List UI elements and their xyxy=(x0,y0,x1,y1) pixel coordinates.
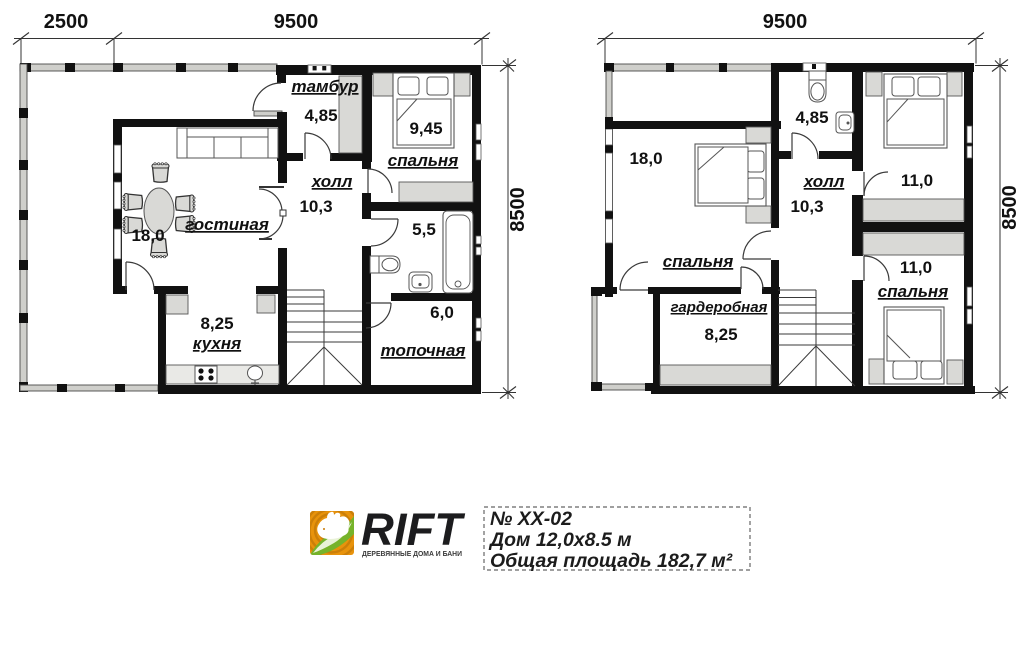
svg-text:ДЕРЕВЯННЫЕ ДОМА И БАНИ: ДЕРЕВЯННЫЕ ДОМА И БАНИ xyxy=(362,549,462,558)
svg-text:2500: 2500 xyxy=(44,11,89,33)
svg-text:Дом 12,0х8.5 м: Дом 12,0х8.5 м xyxy=(488,529,632,551)
svg-text:11,0: 11,0 xyxy=(901,171,933,190)
svg-text:4,85: 4,85 xyxy=(304,106,337,125)
svg-text:8500: 8500 xyxy=(507,187,529,232)
svg-text:9,45: 9,45 xyxy=(409,119,442,138)
svg-text:холл: холл xyxy=(311,172,353,191)
svg-text:8,25: 8,25 xyxy=(704,325,737,344)
svg-text:9500: 9500 xyxy=(274,11,319,33)
svg-text:4,85: 4,85 xyxy=(795,108,828,127)
svg-text:№ ХХ-02: № ХХ-02 xyxy=(490,508,572,530)
svg-text:кухня: кухня xyxy=(193,334,241,353)
svg-text:5,5: 5,5 xyxy=(412,220,436,239)
svg-text:10,3: 10,3 xyxy=(299,197,332,216)
svg-text:топочная: топочная xyxy=(381,341,466,360)
svg-text:10,3: 10,3 xyxy=(790,197,823,216)
svg-text:гардеробная: гардеробная xyxy=(671,299,768,316)
svg-text:11,0: 11,0 xyxy=(900,258,932,277)
svg-text:гостиная: гостиная xyxy=(185,215,269,234)
svg-text:спальня: спальня xyxy=(388,151,458,170)
svg-text:спальня: спальня xyxy=(663,252,733,271)
svg-text:спальня: спальня xyxy=(878,282,948,301)
svg-text:8,25: 8,25 xyxy=(200,314,233,333)
svg-text:6,0: 6,0 xyxy=(430,303,454,322)
svg-text:18,0: 18,0 xyxy=(131,226,164,245)
svg-text:RIFT: RIFT xyxy=(361,504,466,555)
svg-text:Общая площадь 182,7 м²: Общая площадь 182,7 м² xyxy=(490,550,733,572)
svg-text:тамбур: тамбур xyxy=(291,77,358,96)
svg-text:холл: холл xyxy=(803,172,845,191)
svg-text:18,0: 18,0 xyxy=(629,149,662,168)
svg-text:8500: 8500 xyxy=(999,185,1021,230)
svg-text:9500: 9500 xyxy=(763,11,808,33)
